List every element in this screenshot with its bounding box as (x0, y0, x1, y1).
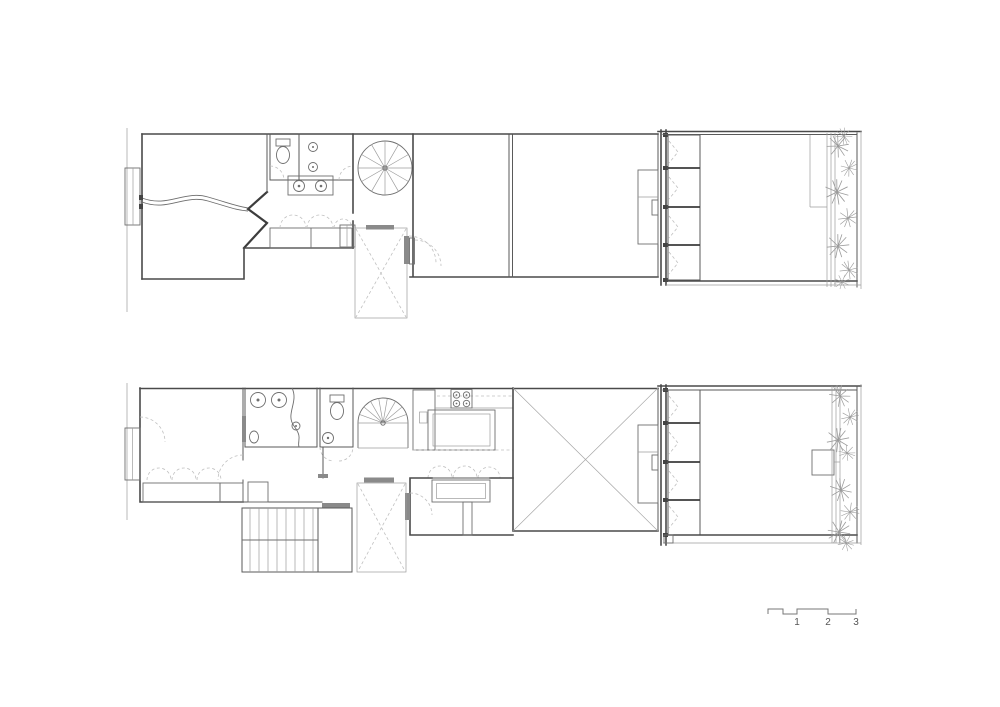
scale-label-1: 1 (794, 617, 800, 628)
desk (812, 450, 834, 475)
green-facade-upper (820, 126, 859, 293)
drawing-sheet: 1 2 3 (0, 0, 1000, 707)
lower-floor-plan (125, 382, 862, 572)
toilet (277, 147, 290, 164)
toilet (331, 403, 344, 420)
fridge-cabinet (413, 390, 435, 450)
scale-bar: 1 2 3 (768, 609, 859, 628)
bench (220, 483, 243, 502)
spiral-staircase-upper (358, 141, 412, 195)
bedroom-upper-left (125, 134, 658, 279)
balcony-lower (357, 483, 406, 572)
door-threshold (364, 478, 394, 483)
table-stem (463, 502, 472, 535)
hallway-lower (318, 447, 394, 508)
cabinet (248, 482, 268, 502)
bathroom-upper (270, 134, 353, 248)
kitchen-island (428, 410, 495, 450)
bathtub-wall (291, 388, 299, 447)
bathroom-lower (242, 388, 317, 447)
void-room-lower (513, 388, 658, 531)
floor-plan-drawing: 1 2 3 (0, 0, 1000, 707)
green-facade-lower (822, 382, 862, 552)
bedroom-lower-left (125, 388, 658, 502)
bedroom-upper-right (658, 131, 861, 289)
staircase-lower (242, 508, 352, 572)
upper-floor-plan (125, 126, 861, 318)
door-threshold (366, 225, 394, 230)
wardrobe (638, 170, 658, 244)
bedroom-lower-right (658, 384, 861, 545)
kitchen-lower (413, 390, 513, 479)
bench (143, 483, 220, 502)
living-rooms-upper (410, 134, 659, 277)
toilet-cistern (276, 139, 290, 146)
door-threshold (322, 503, 350, 508)
scale-label-3: 3 (853, 617, 859, 628)
study-room-lower (405, 478, 513, 535)
hammock (142, 195, 248, 211)
door-leaf (242, 416, 246, 442)
scale-label-2: 2 (825, 617, 831, 628)
closets-lower (638, 385, 700, 545)
balcony-upper (340, 225, 436, 318)
wardrobe (638, 425, 658, 503)
spiral-staircase-lower (358, 398, 408, 448)
wardrobe-handle (652, 200, 658, 215)
door-leaf (318, 474, 328, 478)
closets-upper (661, 130, 700, 285)
balcony-door (404, 236, 409, 264)
wardrobe-handle (652, 455, 658, 470)
wc-lower (320, 388, 353, 461)
toilet (250, 431, 259, 443)
toilet-cistern (330, 395, 344, 402)
